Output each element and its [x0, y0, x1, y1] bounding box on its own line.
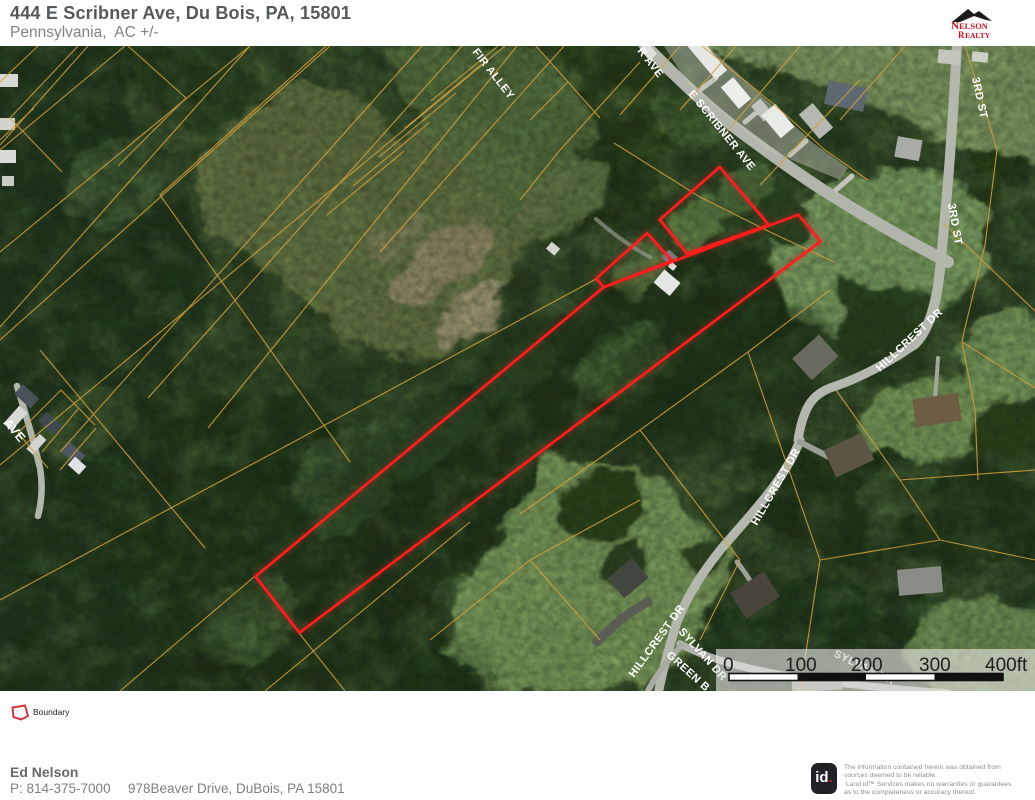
svg-text:R: R [958, 30, 965, 40]
svg-text:EALTY: EALTY [965, 31, 991, 40]
